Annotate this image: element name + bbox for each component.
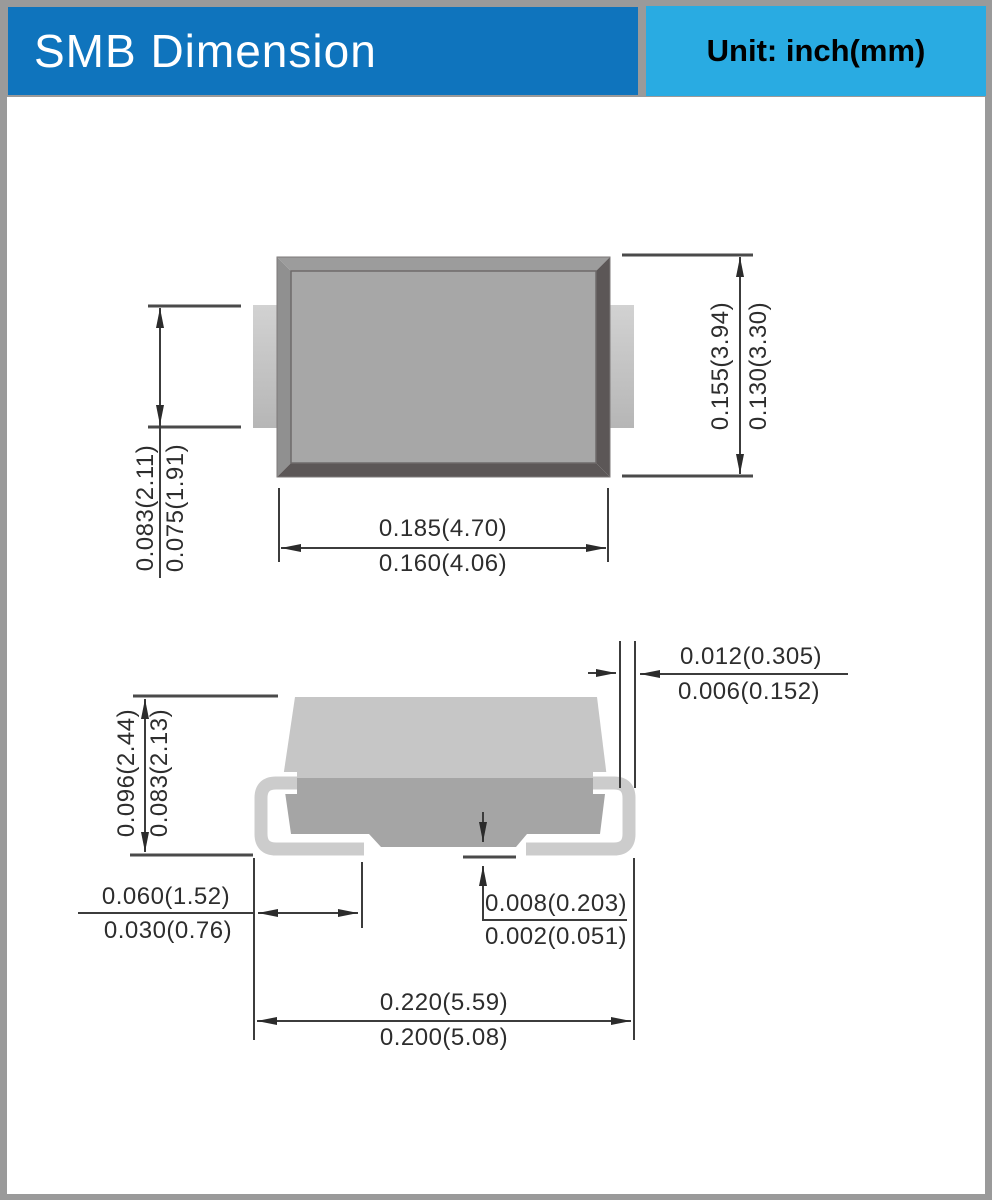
dim-terminal-height-min-label: 0.075(1.91) (164, 444, 188, 572)
dim-standoff-min-label: 0.002(0.051) (485, 925, 627, 949)
dim-body-width-min-label: 0.160(4.06) (379, 552, 507, 576)
dim-lead-thickness-max-label: 0.012(0.305) (680, 645, 822, 669)
dim-body-height-top-max-label: 0.155(3.94) (709, 302, 733, 430)
dim-body-height-top-min-label: 0.130(3.30) (747, 302, 771, 430)
dim-overall-width-max-label: 0.220(5.59) (380, 991, 508, 1015)
terminal-left (253, 305, 277, 428)
dim-standoff-max-label: 0.008(0.203) (485, 892, 627, 916)
dim-body-height-side-min-label: 0.083(2.13) (148, 709, 172, 837)
datasheet-page: SMB Dimension Unit: inch(mm) (0, 0, 992, 1200)
dim-overall-width-min-label: 0.200(5.08) (380, 1026, 508, 1050)
dim-body-height-side-max-label: 0.096(2.44) (115, 709, 139, 837)
terminal-right (610, 305, 634, 428)
dimension-drawing (0, 0, 992, 1200)
dim-terminal-height-max-label: 0.083(2.11) (134, 445, 158, 571)
dim-foot-length-min-label: 0.030(0.76) (104, 919, 232, 943)
dim-body-width-max-label: 0.185(4.70) (379, 517, 507, 541)
dim-lead-thickness-min-label: 0.006(0.152) (678, 680, 820, 704)
dim-foot-length-max-label: 0.060(1.52) (102, 885, 230, 909)
package-body-top (277, 257, 610, 477)
package-body-side (283, 697, 607, 847)
